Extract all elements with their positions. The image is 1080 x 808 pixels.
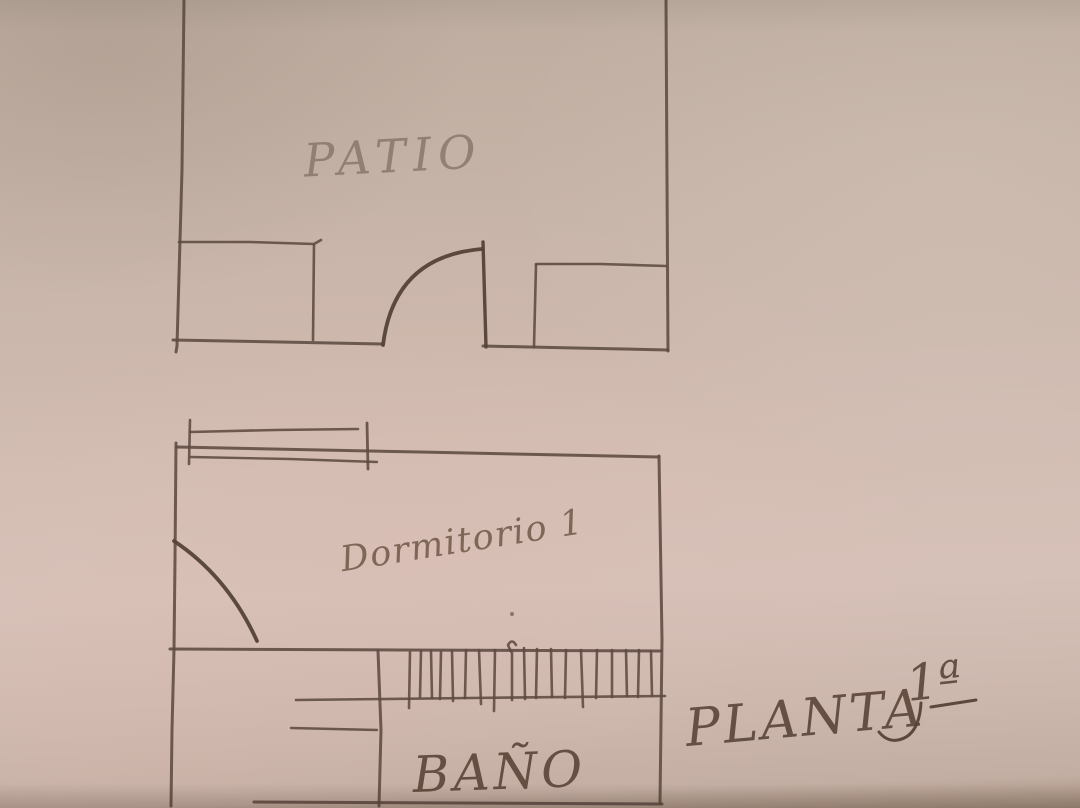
- hatch-tick: [565, 650, 566, 698]
- hatch-tick: [431, 651, 432, 698]
- patio-right-recess-top: [536, 264, 666, 266]
- hatch-tick: [551, 649, 552, 697]
- bano-room: BAÑO: [254, 642, 665, 807]
- patio-left-recess-side: [313, 245, 314, 340]
- hatch-tick: [581, 650, 583, 707]
- hatched-wall: [291, 642, 665, 731]
- hatch-tick: [651, 651, 652, 696]
- patio-bottom-wall-right: [483, 346, 668, 350]
- floor-title: PLANTA 1ª: [682, 649, 976, 759]
- patio-right-wall: [666, 0, 668, 351]
- dormitorio-top-wall: [177, 447, 659, 457]
- patio-door: [383, 242, 486, 347]
- dormitorio-door: [174, 541, 257, 641]
- window-end-tick-right: [367, 423, 368, 469]
- hatch-tick: [494, 650, 495, 711]
- hatch-tick: [536, 649, 537, 698]
- patio-left-wall: [176, 0, 184, 352]
- dormitorio-right-wall: [659, 456, 662, 803]
- patio-room: PATIO: [173, 0, 668, 352]
- patio-door-swing-arc: [383, 249, 482, 345]
- hatch-tick: [626, 650, 627, 696]
- hatch-tick: [638, 650, 639, 697]
- window-inner-line: [191, 457, 377, 462]
- patio-bottom-wall-left: [173, 340, 383, 344]
- hatch-tick: [479, 650, 481, 704]
- hatch-tick: [409, 652, 410, 708]
- pen-dot: [510, 612, 514, 616]
- dormitorio-window: [189, 420, 377, 469]
- dormitorio-door-swing-arc: [174, 541, 257, 641]
- window-end-tick-left: [189, 420, 190, 464]
- dormitorio-label: Dormitorio 1: [337, 502, 587, 580]
- step-line: [291, 728, 377, 730]
- patio-right-recess-side: [534, 265, 536, 347]
- hatch-tick: [420, 651, 421, 697]
- hatch-tick: [524, 648, 525, 699]
- floor-title-word: PLANTA: [682, 678, 927, 759]
- bano-label: BAÑO: [411, 739, 588, 804]
- bano-left-wall: [378, 651, 381, 806]
- dormitorio-left-wall: [171, 443, 176, 806]
- window-outer-line: [190, 429, 358, 432]
- patio-left-recess-top: [179, 240, 321, 244]
- patio-label: PATIO: [301, 124, 484, 187]
- floor-plan-photo: PATIO Dormitorio 1: [0, 0, 1080, 808]
- dormitorio-bottom-wall: [170, 649, 661, 651]
- patio-door-leaf: [483, 242, 486, 347]
- hatch-tick: [465, 650, 466, 698]
- hatch-tick: [440, 652, 441, 699]
- hatch-tick: [596, 650, 597, 698]
- hatch-tick: [452, 651, 453, 701]
- floor-plan-sketch: PATIO Dormitorio 1: [0, 0, 1080, 808]
